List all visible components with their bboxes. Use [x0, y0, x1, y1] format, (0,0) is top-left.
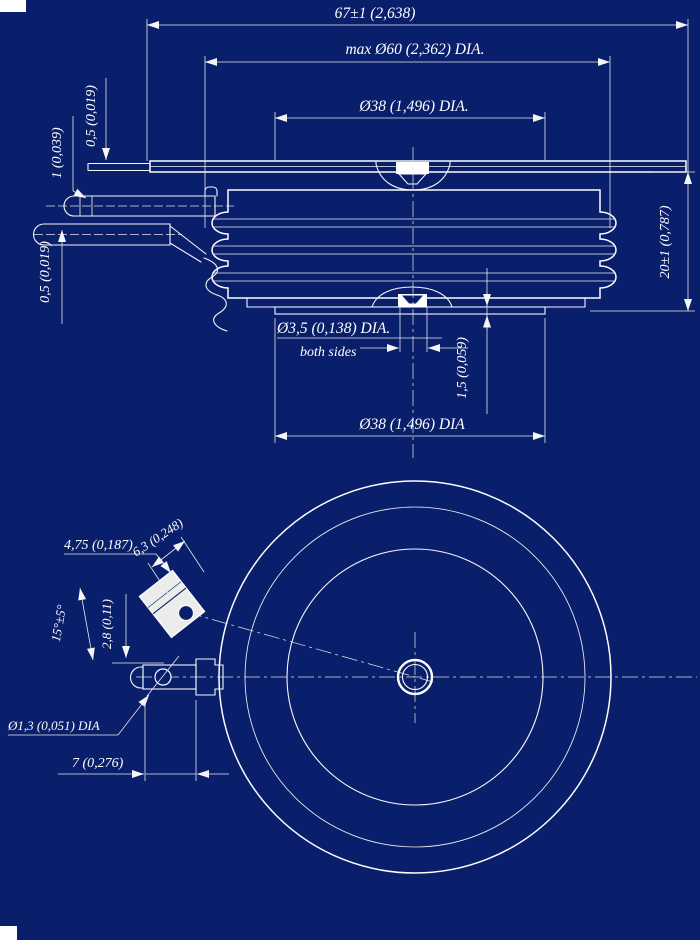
sheet-corner-top-left: [0, 0, 26, 12]
dim-terminal-offset-label: 2,8 (0,11): [99, 599, 114, 649]
dim-bottom-pole-diameter-label: Ø38 (1,496) DIA: [358, 416, 465, 433]
dim-top-pole-diameter-label: Ø38 (1,496) DIA.: [358, 98, 468, 115]
dim-max-diameter-label: max Ø60 (2,362) DIA.: [345, 41, 484, 58]
dim-lead-thickness-lower-label: 0,5 (0,019): [38, 241, 53, 303]
dim-terminal-hole-label: Ø1,3 (0,051) DIA: [7, 718, 100, 733]
sheet-corner-bottom-left: [0, 926, 17, 940]
dim-lead-thickness-upper-label: 0,5 (0,019): [84, 85, 99, 147]
dim-recess-depth-label: 1,5 (0,059): [455, 337, 470, 399]
gate-recess-top: [396, 162, 429, 174]
dim-terminal-length-label: 7 (0,276): [72, 756, 124, 771]
dim-height-label: 20±1 (0,787): [658, 205, 673, 278]
drawing-background: [0, 0, 700, 940]
gate-hole-note-label: both sides: [300, 345, 357, 360]
dim-lead-spacing-label: 1 (0,039): [50, 127, 65, 179]
technical-drawing-sheet: 67±1 (2,638) max Ø60 (2,362) DIA. Ø38 (1…: [0, 0, 700, 940]
dim-tab-length-label: 4,75 (0,187): [64, 538, 133, 553]
dim-overall-width-label: 67±1 (2,638): [335, 5, 416, 22]
capsule-device-outline-drawing: 67±1 (2,638) max Ø60 (2,362) DIA. Ø38 (1…: [0, 0, 700, 940]
tab-hole: [179, 606, 194, 621]
dim-gate-hole-label: Ø3,5 (0,138) DIA.: [276, 320, 390, 337]
